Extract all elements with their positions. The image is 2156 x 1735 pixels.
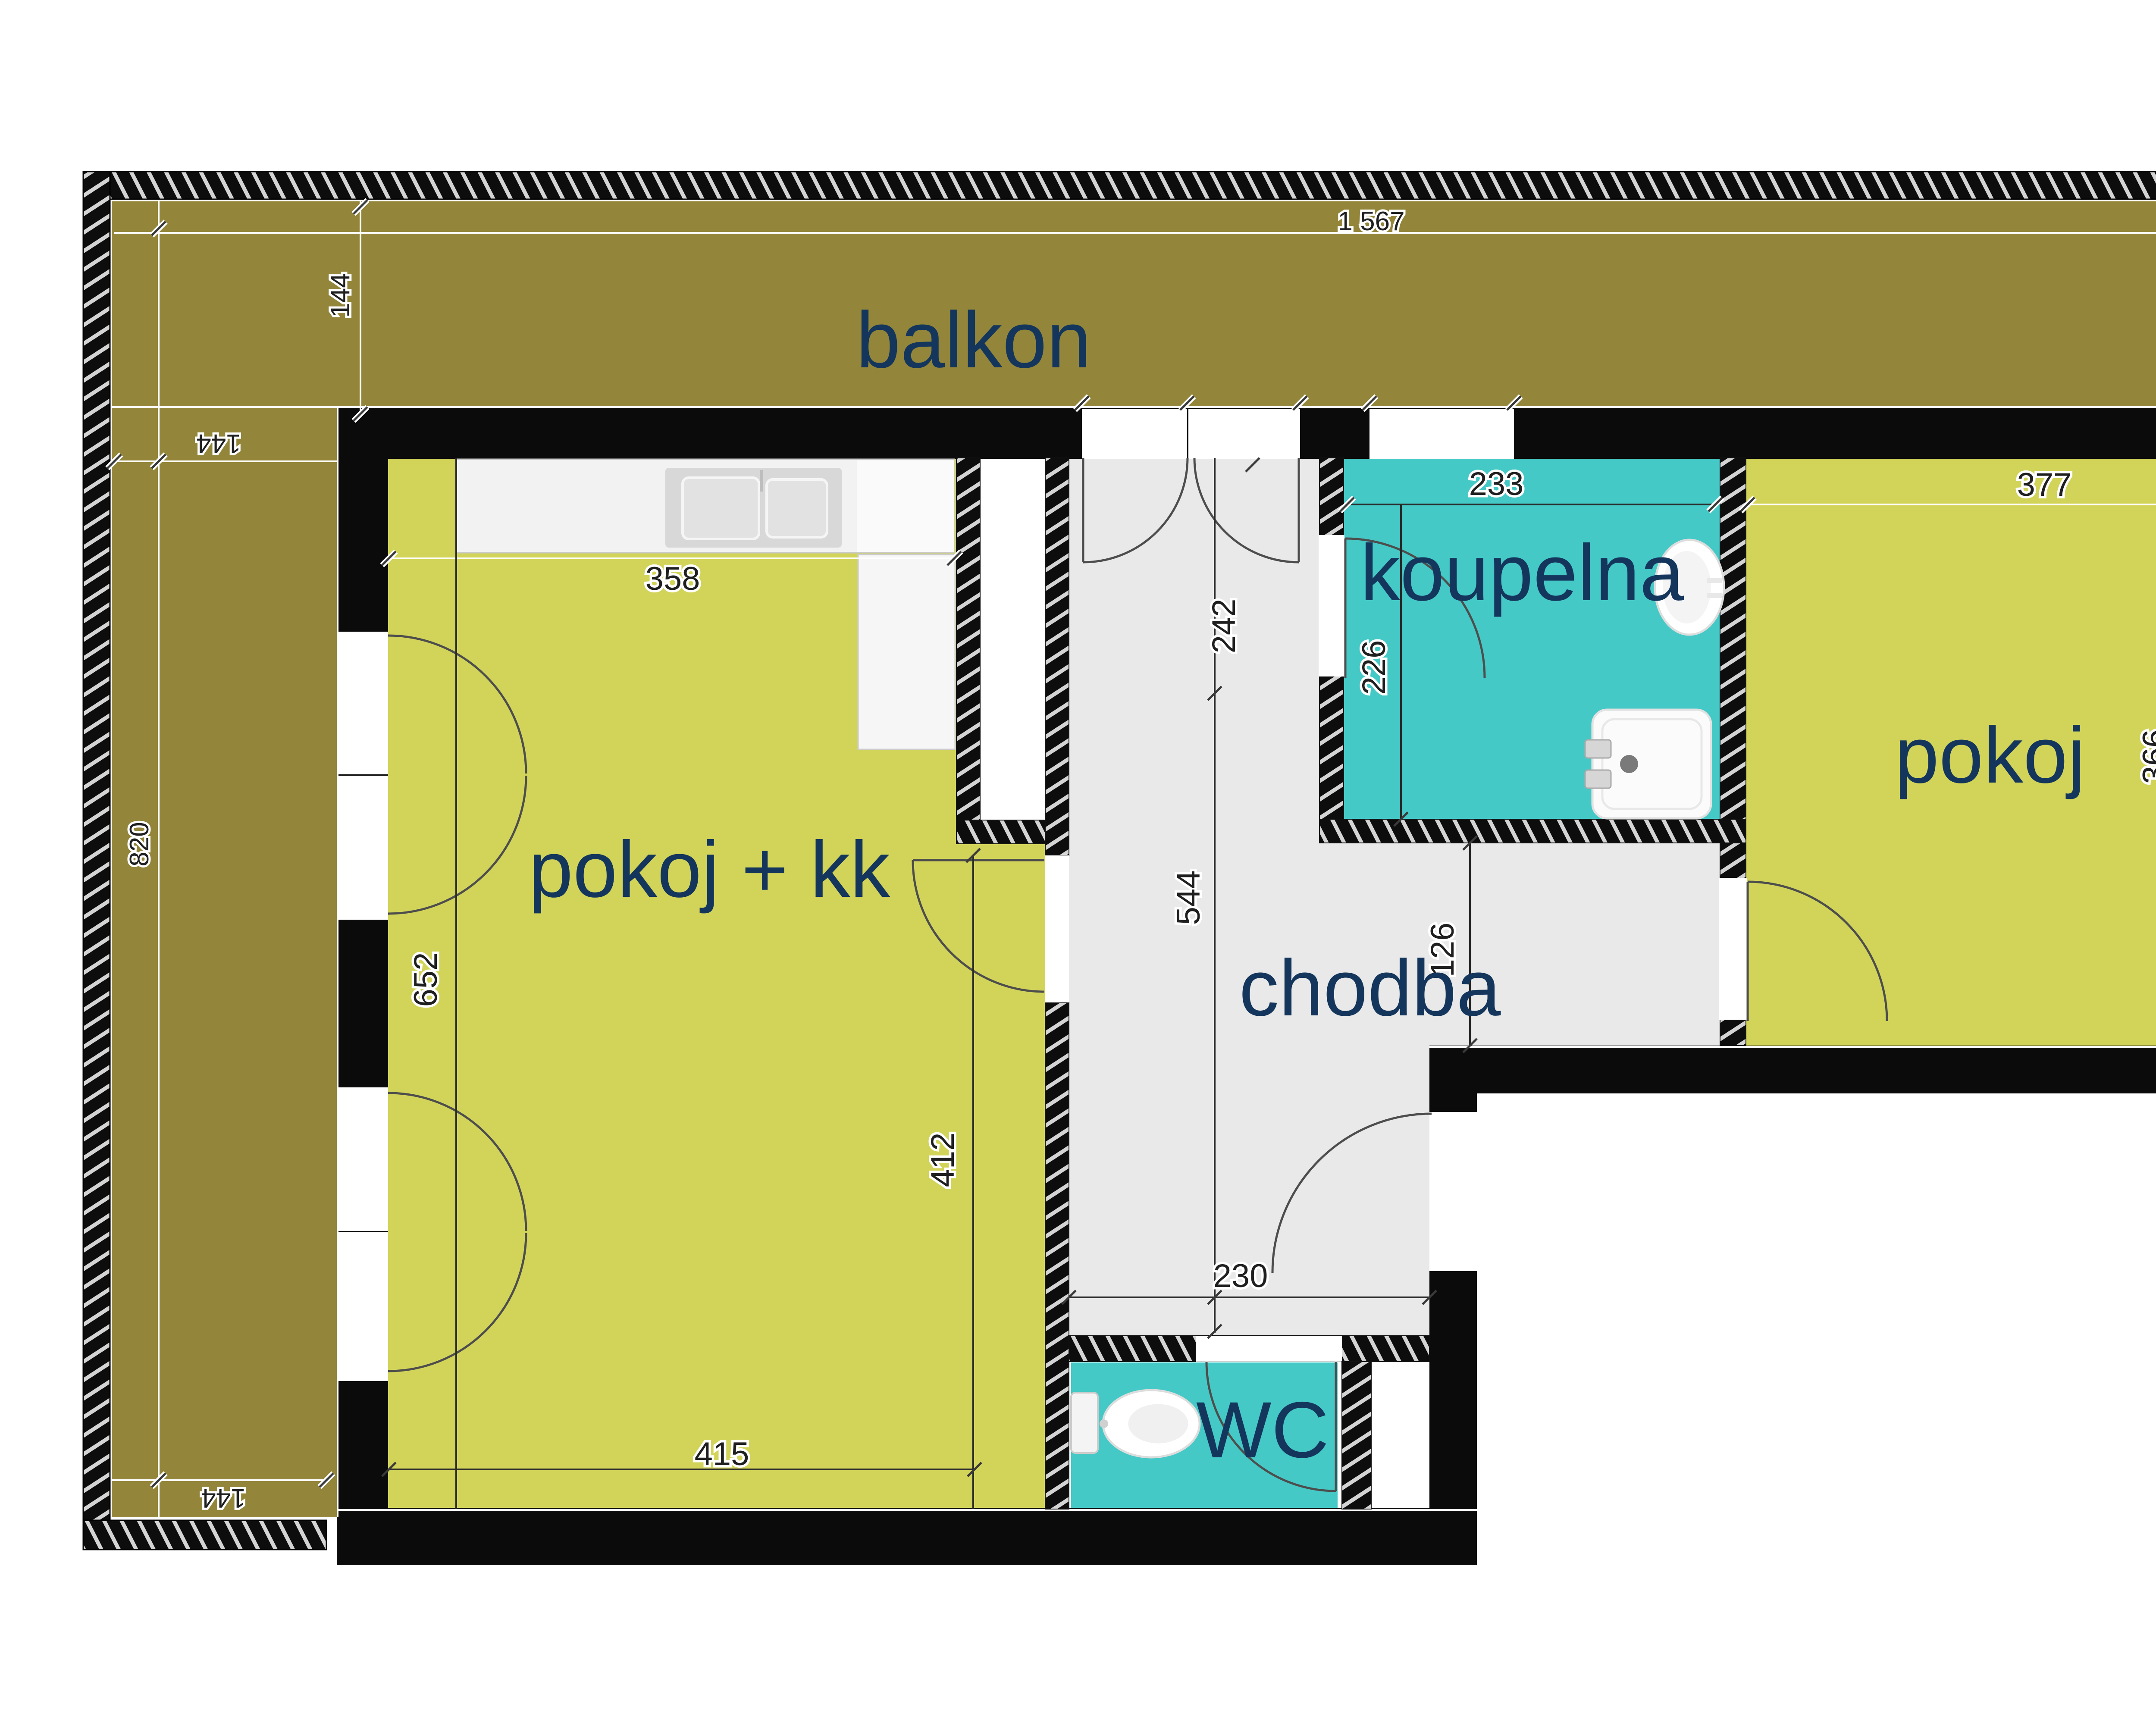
svg-text:144: 144 xyxy=(196,429,241,458)
svg-text:balkon: balkon xyxy=(856,296,1091,385)
svg-text:233: 233 xyxy=(1469,466,1524,502)
svg-text:pokoj + kk: pokoj + kk xyxy=(529,825,890,914)
svg-text:652: 652 xyxy=(407,952,444,1007)
svg-text:415: 415 xyxy=(695,1436,749,1472)
svg-text:144: 144 xyxy=(201,1483,245,1513)
svg-text:1 567: 1 567 xyxy=(1338,207,1404,236)
svg-text:412: 412 xyxy=(924,1133,961,1187)
svg-text:242: 242 xyxy=(1206,599,1242,654)
svg-text:544: 544 xyxy=(1170,871,1207,925)
svg-text:366: 366 xyxy=(2136,730,2156,784)
svg-text:WC: WC xyxy=(1196,1386,1329,1475)
svg-text:230: 230 xyxy=(1213,1258,1268,1294)
svg-text:226: 226 xyxy=(1356,640,1392,695)
svg-text:144: 144 xyxy=(326,273,355,317)
svg-text:358: 358 xyxy=(646,561,700,597)
svg-text:377: 377 xyxy=(2017,467,2072,503)
svg-text:koupelna: koupelna xyxy=(1360,529,1684,617)
svg-text:820: 820 xyxy=(125,822,154,866)
svg-text:pokoj: pokoj xyxy=(1895,711,2085,800)
svg-text:chodba: chodba xyxy=(1239,944,1501,1033)
